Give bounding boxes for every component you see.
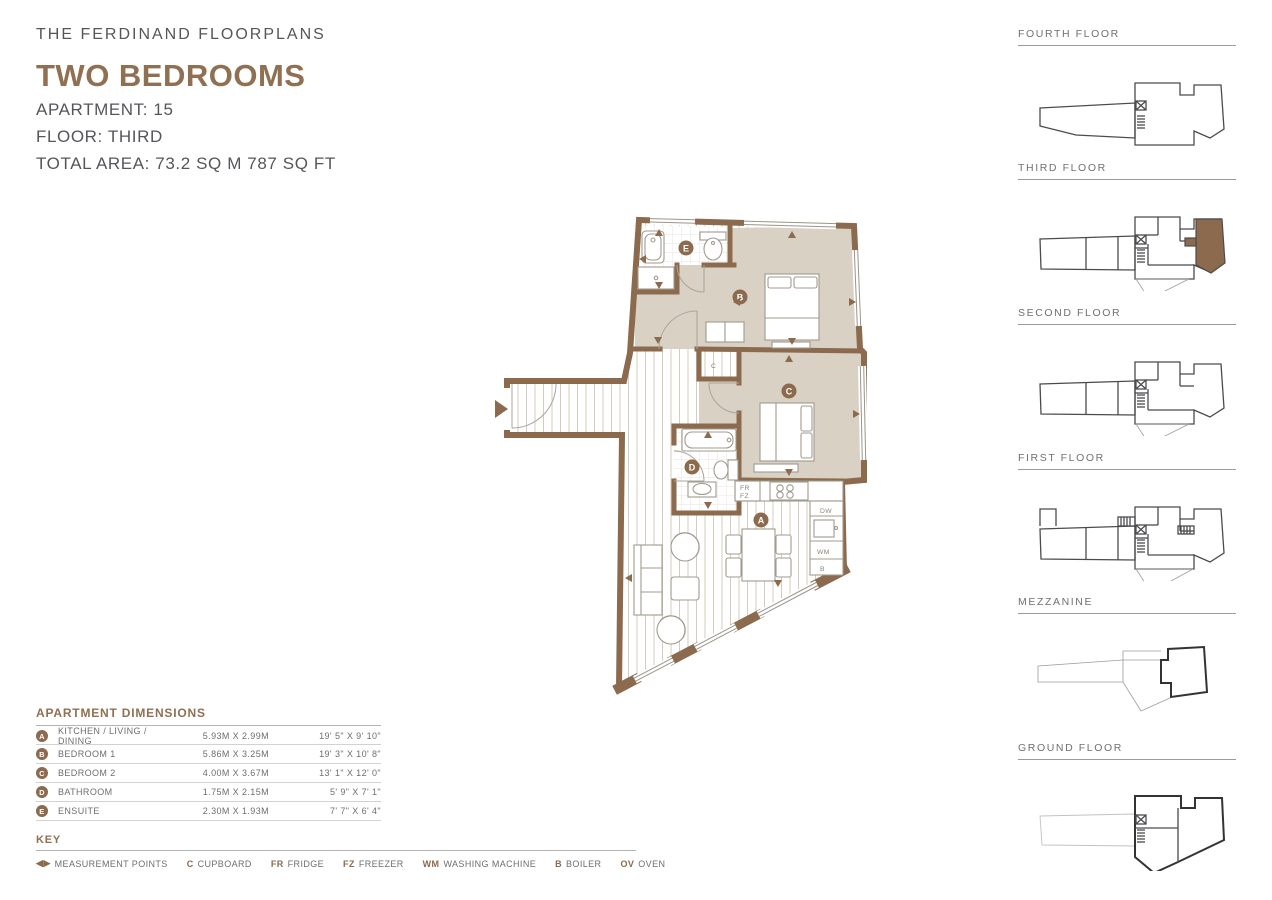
key-item: WMWASHING MACHINE [423,858,536,869]
floor-key-plan [1018,331,1236,436]
dimension-row: CBEDROOM 24.00M X 3.67M13' 1" X 12' 0" [36,764,381,783]
room-label-e: E [683,244,689,254]
room-name: ENSUITE [58,806,169,816]
key-label: FRIDGE [288,859,324,869]
page-title: TWO BEDROOMS [36,58,336,94]
header: THE FERDINAND FLOORPLANS TWO BEDROOMS AP… [36,26,336,175]
key-title: KEY [36,834,636,851]
floor-key-label: FOURTH FLOOR [1018,28,1236,40]
key-symbol: WM [423,859,440,869]
metric-dimensions: 1.75M X 2.15M [169,787,269,797]
dimension-row: DBATHROOM1.75M X 2.15M5' 9" X 7' 1" [36,783,381,802]
key-symbol: OV [620,859,634,869]
washing-machine-label: WM [817,549,830,556]
total-area: TOTAL AREA: 73.2 SQ M 787 SQ FT [36,153,336,175]
room-letter-badge: C [36,767,48,779]
freezer-label: FZ [740,493,749,500]
metric-dimensions: 2.30M X 1.93M [169,806,269,816]
imperial-dimensions: 7' 7" X 6' 4" [269,806,381,816]
floor-key-second-floor: SECOND FLOOR [1018,307,1236,436]
key-label: CUPBOARD [198,859,252,869]
dimensions-title: APARTMENT DIMENSIONS [36,706,381,726]
metric-dimensions: 4.00M X 3.67M [169,768,269,778]
floor-key-first-floor: FIRST FLOOR [1018,452,1236,581]
room-name: BEDROOM 1 [58,749,169,759]
floor-key-rule [1018,759,1236,760]
floor-key-label: THIRD FLOOR [1018,162,1236,174]
imperial-dimensions: 5' 9" X 7' 1" [269,787,381,797]
floor-key-rule [1018,469,1236,470]
dimension-row: BBEDROOM 15.86M X 3.25M19' 3" X 10' 8" [36,745,381,764]
floor-key-rule [1018,324,1236,325]
floor-key-label: SECOND FLOOR [1018,307,1236,319]
room-label-d: D [689,463,696,473]
room-letter-badge: A [36,730,48,742]
key-items: ◀▶MEASUREMENT POINTSCCUPBOARDFRFRIDGEFZF… [36,858,636,869]
floor-key-ground-floor: GROUND FLOOR [1018,742,1236,871]
floor-key-rule [1018,179,1236,180]
key-item: ◀▶MEASUREMENT POINTS [36,858,168,869]
floorplan-drawing: FR FZ DW WM B C A B C D E [492,198,944,703]
floor-key-rule [1018,613,1236,614]
key-section: KEY ◀▶MEASUREMENT POINTSCCUPBOARDFRFRIDG… [36,834,636,869]
metric-dimensions: 5.93M X 2.99M [169,731,269,741]
room-letter-badge: E [36,805,48,817]
imperial-dimensions: 13' 1" X 12' 0" [269,768,381,778]
dimension-row: EENSUITE2.30M X 1.93M7' 7" X 6' 4" [36,802,381,821]
key-label: BOILER [566,859,601,869]
floor-name: FLOOR: THIRD [36,126,336,148]
floor-key-plan [1018,476,1236,581]
room-label-a: A [758,516,765,526]
floor-key-plan [1018,186,1236,291]
floor-key-label: GROUND FLOOR [1018,742,1236,754]
floor-key-plan [1018,52,1236,157]
imperial-dimensions: 19' 3" X 10' 8" [269,749,381,759]
dishwasher-label: DW [820,508,832,515]
key-item: OVOVEN [620,858,665,869]
room-letter-badge: D [36,786,48,798]
key-symbol: ◀▶ [36,858,51,869]
key-item: CCUPBOARD [187,858,252,869]
metric-dimensions: 5.86M X 3.25M [169,749,269,759]
dimensions-rows: AKITCHEN / LIVING / DINING5.93M X 2.99M1… [36,726,381,821]
floor-key-plan [1018,620,1236,725]
key-symbol: C [187,859,194,869]
key-label: FREEZER [359,859,404,869]
room-letter-badge: B [36,748,48,760]
key-symbol: B [555,859,562,869]
boiler-label: B [820,566,825,573]
key-symbol: FR [271,859,284,869]
apartment-dimensions: APARTMENT DIMENSIONS AKITCHEN / LIVING /… [36,706,381,821]
key-symbol: FZ [343,859,355,869]
key-label: OVEN [638,859,665,869]
apartment-number: APARTMENT: 15 [36,99,336,121]
room-name: KITCHEN / LIVING / DINING [58,726,169,746]
floor-key-label: FIRST FLOOR [1018,452,1236,464]
imperial-dimensions: 19' 5" X 9' 10" [269,731,381,741]
key-label: MEASUREMENT POINTS [55,859,168,869]
cupboard-label: C [711,363,716,370]
floor-key-third-floor: THIRD FLOOR [1018,162,1236,291]
key-label: WASHING MACHINE [443,859,536,869]
key-item: FRFRIDGE [271,858,324,869]
room-label-c: C [786,387,793,397]
key-item: BBOILER [555,858,601,869]
key-item: FZFREEZER [343,858,404,869]
floor-key-mezzanine: MEZZANINE [1018,596,1236,725]
floor-key-fourth-floor: FOURTH FLOOR [1018,28,1236,157]
room-name: BEDROOM 2 [58,768,169,778]
floor-key-rule [1018,45,1236,46]
floor-key-plan [1018,766,1236,871]
floor-key-label: MEZZANINE [1018,596,1236,608]
main-floorplan: FR FZ DW WM B C A B C D E [492,198,944,703]
room-name: BATHROOM [58,787,169,797]
document-subtitle: THE FERDINAND FLOORPLANS [36,26,336,44]
dimension-row: AKITCHEN / LIVING / DINING5.93M X 2.99M1… [36,726,381,745]
fridge-label: FR [740,485,750,492]
